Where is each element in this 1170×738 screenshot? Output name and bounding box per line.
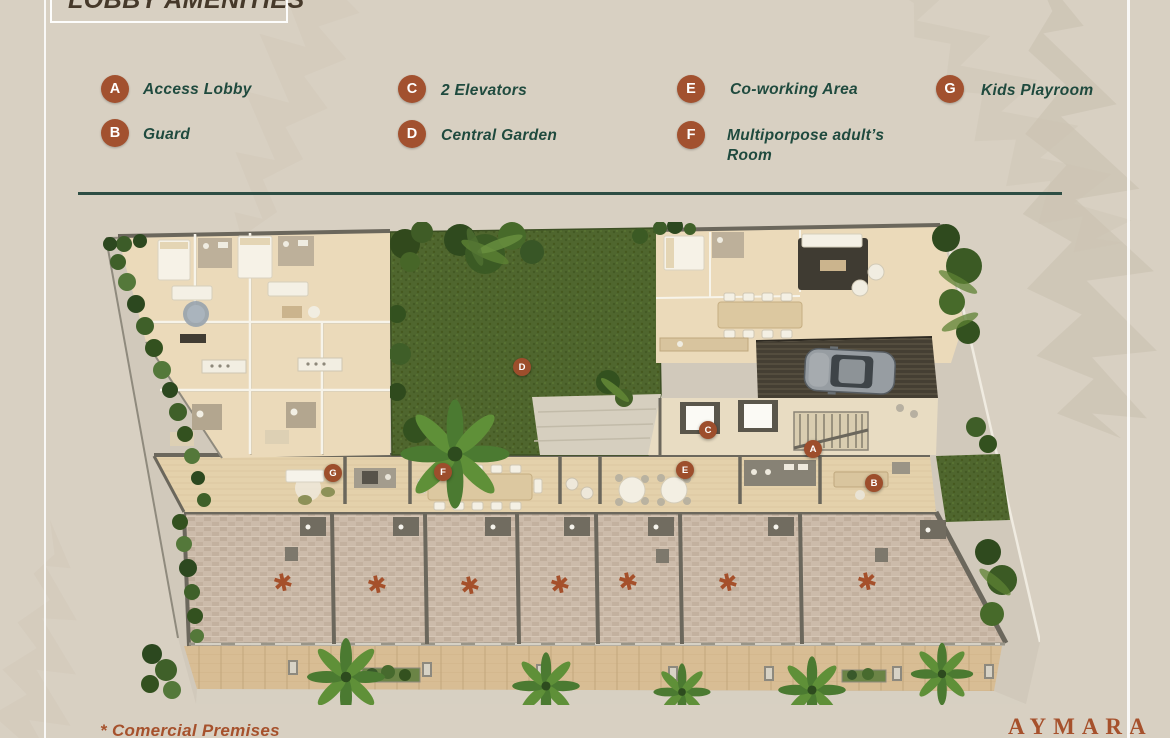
floor-plan-render xyxy=(100,222,1040,705)
legend-label-access-lobby: Access Lobby xyxy=(143,80,252,100)
marker-letter: E xyxy=(682,465,688,476)
legend-badge-a: A xyxy=(101,75,129,103)
plan-marker-a: A xyxy=(804,440,822,458)
title-box: LOBBY AMENITIES xyxy=(50,0,288,23)
palm-tree-icon xyxy=(400,399,509,508)
legend-label-elevators: 2 Elevators xyxy=(441,81,527,101)
legend-letter: C xyxy=(407,81,417,97)
car-icon xyxy=(804,345,896,398)
palm-tree-icon xyxy=(911,643,973,705)
legend-badge-c: C xyxy=(398,75,426,103)
legend-letter: E xyxy=(686,81,696,97)
floor-plan: A B C D E F G ✱ ✱ ✱ ✱ ✱ ✱ ✱ xyxy=(100,222,1040,705)
marker-letter: A xyxy=(810,444,817,455)
legend-letter: A xyxy=(110,81,120,97)
plan-marker-e: E xyxy=(676,461,694,479)
lobby-area xyxy=(648,398,938,455)
brand-logo: AYMARA xyxy=(1008,714,1153,738)
marker-letter: D xyxy=(519,362,526,373)
legend-badge-g: G xyxy=(936,75,964,103)
marker-letter: B xyxy=(871,478,878,489)
legend-label-kids-playroom: Kids Playroom xyxy=(981,81,1093,101)
commercial-premises-footnote: * Comercial Premises xyxy=(100,721,280,738)
page-title: LOBBY AMENITIES xyxy=(68,0,305,15)
legend-label-multipurpose: Multiporpose adult’s Room xyxy=(727,126,899,166)
commercial-units xyxy=(184,512,1006,646)
marker-letter: C xyxy=(705,425,712,436)
left-border-line xyxy=(44,0,46,738)
plan-marker-c: C xyxy=(699,421,717,439)
right-border-line xyxy=(1127,0,1130,738)
car-deck xyxy=(756,337,938,400)
legend-badge-b: B xyxy=(101,119,129,147)
brochure-page: LOBBY AMENITIES A Access Lobby B Guard C… xyxy=(0,0,1170,738)
legend-letter: D xyxy=(407,126,417,142)
legend-badge-f: F xyxy=(677,121,705,149)
plan-marker-d: D xyxy=(513,358,531,376)
legend-badge-d: D xyxy=(398,120,426,148)
amenities-strip xyxy=(154,455,936,512)
divider-line xyxy=(78,192,1062,195)
legend-letter: G xyxy=(944,81,955,97)
legend-letter: F xyxy=(687,127,696,143)
marker-letter: G xyxy=(329,468,336,479)
legend-label-guard: Guard xyxy=(143,125,190,145)
plan-marker-g: G xyxy=(324,464,342,482)
plan-marker-f: F xyxy=(434,463,452,481)
legend-letter: B xyxy=(110,125,120,141)
legend-label-coworking: Co-working Area xyxy=(730,80,858,100)
legend-badge-e: E xyxy=(677,75,705,103)
side-lawn xyxy=(936,454,1010,522)
plan-marker-b: B xyxy=(865,474,883,492)
boardwalk xyxy=(184,646,1002,691)
legend-label-central-garden: Central Garden xyxy=(441,126,557,146)
marker-letter: F xyxy=(440,467,446,478)
